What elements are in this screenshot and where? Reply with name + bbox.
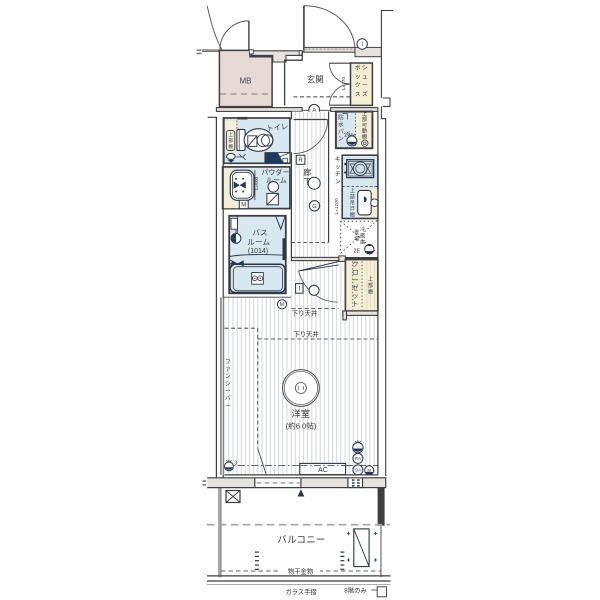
svg-text:置場: 置場: [354, 230, 359, 243]
svg-text:下り天井: 下り天井: [293, 329, 319, 338]
svg-text:RA: RA: [355, 456, 362, 461]
svg-text:ガラス手摺: ガラス手摺: [285, 587, 316, 596]
svg-text:物干金物: 物干金物: [288, 566, 313, 575]
svg-text:L=600: L=600: [254, 176, 260, 190]
svg-text:8階のみ: 8階のみ: [344, 585, 366, 594]
svg-text:M: M: [367, 468, 371, 473]
svg-text:玄関: 玄関: [307, 75, 324, 85]
svg-text:3: 3: [234, 460, 237, 466]
svg-text:M: M: [280, 302, 284, 308]
svg-text:AC: AC: [318, 467, 328, 474]
svg-text:2E: 2E: [354, 248, 361, 254]
svg-text:バルコニー: バルコニー: [277, 534, 325, 545]
svg-text:上部吊戸棚: 上部吊戸棚: [350, 188, 355, 219]
svg-text:キッチン: キッチン: [335, 158, 341, 186]
svg-text:R: R: [298, 158, 303, 164]
svg-text:(1014): (1014): [248, 248, 268, 255]
svg-text:(約6.0帖): (約6.0帖): [286, 420, 317, 430]
svg-text:G: G: [312, 204, 317, 210]
svg-text:上部棚: 上部棚: [228, 131, 233, 150]
svg-text:M: M: [241, 203, 246, 209]
svg-text:OA: OA: [355, 468, 363, 473]
svg-text:バス: バス: [252, 228, 267, 237]
svg-text:MB: MB: [240, 77, 252, 86]
svg-text:パウダー: パウダー: [261, 167, 289, 176]
svg-text:L=770: L=770: [341, 76, 347, 90]
svg-text:下り天井: 下り天井: [292, 309, 318, 318]
svg-text:ファンシーバー: ファンシーバー: [225, 359, 231, 410]
svg-text:ルーム: ルーム: [247, 238, 270, 247]
svg-text:洋室: 洋室: [291, 408, 310, 419]
svg-text:L=1200: L=1200: [334, 198, 340, 214]
svg-text:防水パン: 防水パン: [338, 114, 344, 143]
svg-text:冷蔵庫: 冷蔵庫: [360, 226, 365, 246]
svg-text:上部可動棚: 上部可動棚: [362, 110, 367, 141]
svg-text:クローゼット: クローゼット: [352, 261, 359, 309]
svg-text:上部棚: 上部棚: [368, 276, 373, 296]
